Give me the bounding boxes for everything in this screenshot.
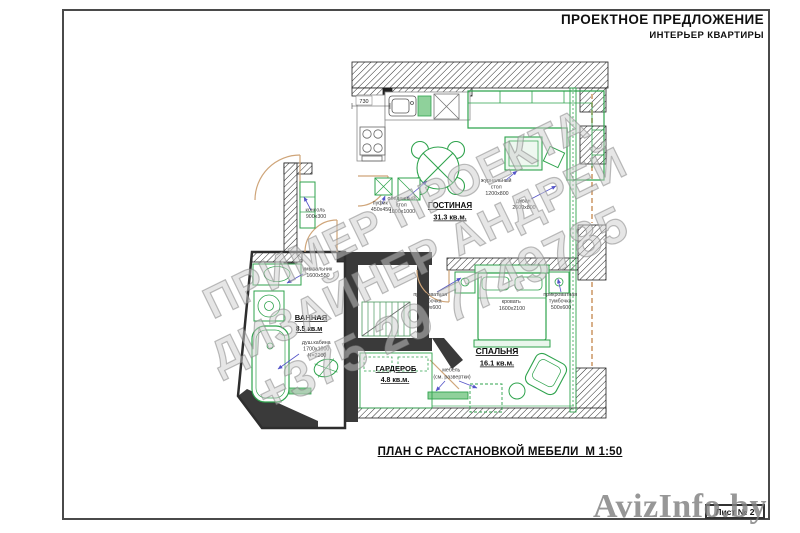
bed-label: кровать 1600х2100 (499, 299, 525, 312)
bench-icon (289, 388, 311, 394)
sofa-label: диван 2600х800 (512, 199, 535, 212)
coffee-table-icon (505, 137, 542, 170)
site-watermark: AvizInfo.by (593, 488, 767, 526)
pillow-icon (515, 277, 542, 290)
room-bathroom-area: 8.5 кв.м (296, 326, 323, 333)
bed-headboard (475, 265, 549, 273)
console-label: консоль 900х300 (305, 208, 326, 221)
wall-bath-top (252, 252, 302, 262)
wall-core-top (358, 252, 432, 265)
room-wardrobe-area: 4.8 кв.м. (381, 377, 410, 384)
wall-pier-3 (578, 225, 606, 280)
plan-caption: ПЛАН С РАССТАНОВКОЙ МЕБЕЛИ М 1:50 (300, 446, 700, 458)
room-living-area: 31.3 кв.м. (433, 213, 466, 222)
wall-pier-2 (580, 126, 606, 164)
bedroom-furniture (428, 265, 574, 412)
wall-core-left (345, 252, 358, 422)
wall-pier-4 (576, 368, 606, 412)
washing-machine-icon (254, 291, 284, 321)
wall-hall-left (284, 163, 297, 263)
armchair-icon (523, 351, 569, 397)
wall-top (352, 62, 608, 88)
bathroom-fixtures (252, 264, 340, 402)
stool-icon (543, 146, 564, 167)
toilet-icon (312, 357, 340, 380)
coffee-table-label: журнальный стол 1200х800 (481, 177, 513, 197)
window-glazing (570, 88, 576, 412)
shower-cabin-icon (252, 326, 289, 402)
room-bedroom-area: 16.1 кв.м. (480, 359, 514, 368)
tv-stand-icon (428, 392, 468, 399)
dim-730-label: 730 (359, 99, 368, 105)
dining-table-label: обеденный стол 1000х1000 (388, 195, 417, 215)
entry-stairs (362, 302, 410, 336)
room-bedroom-name: СПАЛЬНЯ (476, 346, 519, 356)
room-wardrobe-name: ГАРДЕРОБ (376, 364, 417, 373)
console-icon (300, 182, 315, 228)
room-bathroom-name: ВАННАЯ (295, 313, 328, 322)
shower-label: душ.кабина 1700х1000 Н=2200 (302, 340, 332, 359)
room-living-name: ГОСТИНАЯ (428, 201, 472, 210)
drawing-sheet: ПРОЕКТНОЕ ПРЕДЛОЖЕНИЕ ИНТЕРЬЕР КВАРТИРЫ (0, 0, 800, 533)
pillow-icon (482, 277, 509, 290)
nightstand-left-icon (455, 272, 475, 293)
wall-bottom (352, 408, 606, 418)
wall-diagonal (432, 338, 463, 369)
cutting-board (418, 96, 431, 116)
side-table-icon (509, 383, 525, 399)
wall-core-bottom (358, 338, 432, 351)
washbasin-label: умывальник 1600х550 (302, 267, 333, 280)
